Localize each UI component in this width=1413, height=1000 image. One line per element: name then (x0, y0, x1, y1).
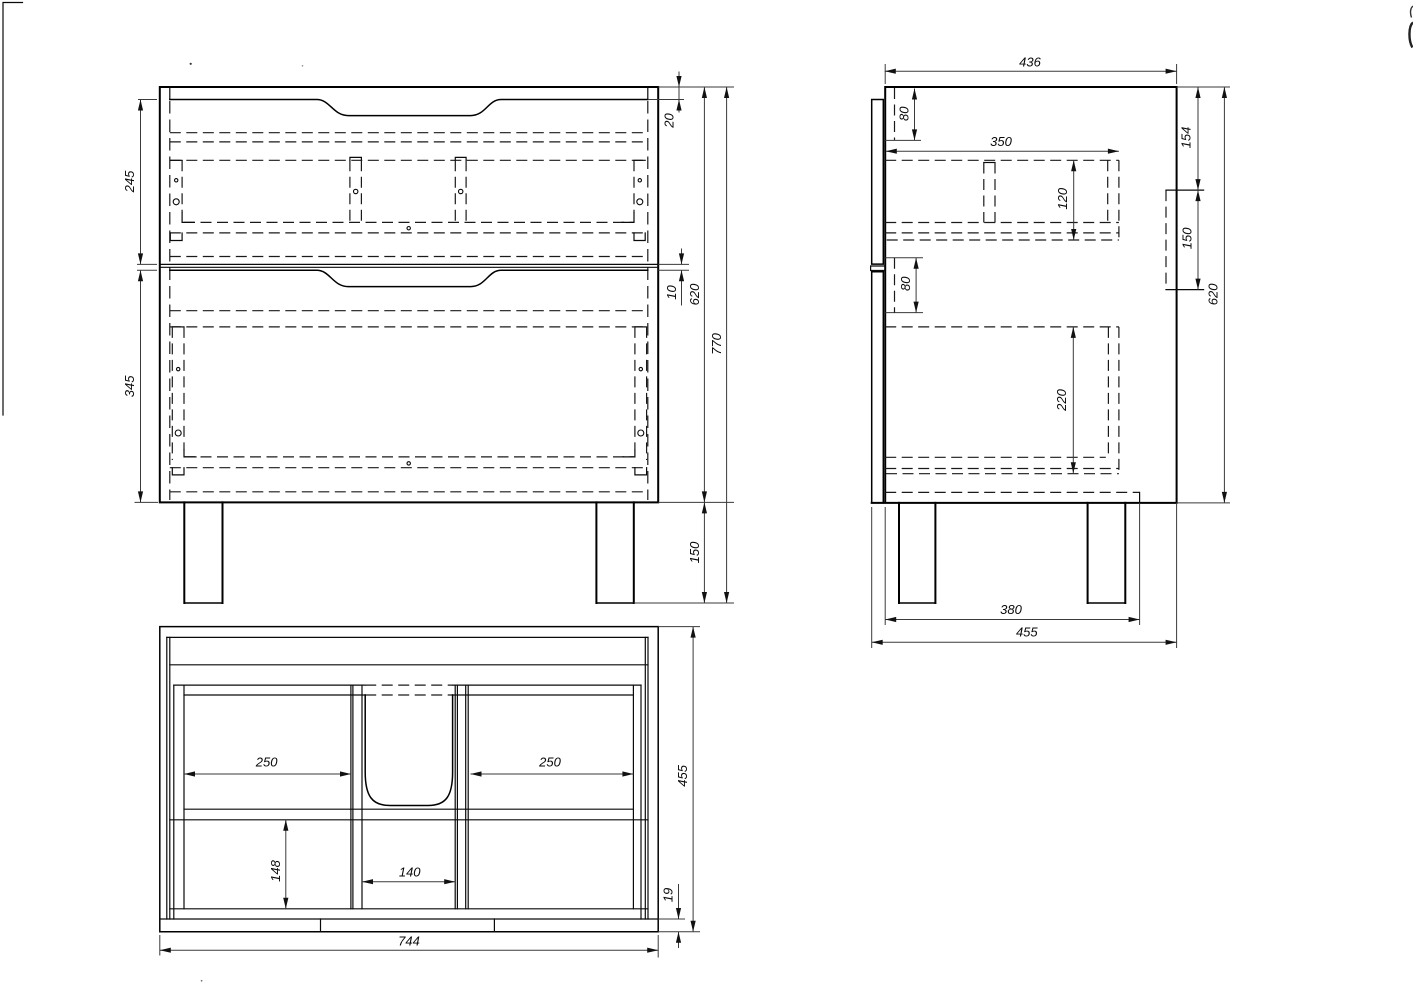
svg-text:455: 455 (1016, 624, 1038, 639)
svg-text:150: 150 (1179, 227, 1194, 249)
svg-text:80: 80 (896, 106, 911, 121)
svg-text:148: 148 (268, 859, 283, 881)
svg-text:150: 150 (687, 541, 702, 563)
svg-text:744: 744 (398, 933, 420, 948)
svg-text:250: 250 (255, 755, 278, 770)
svg-text:455: 455 (675, 764, 690, 786)
svg-text:250: 250 (538, 755, 561, 770)
svg-text:770: 770 (709, 332, 724, 354)
svg-text:620: 620 (687, 283, 702, 305)
svg-text:220: 220 (1054, 388, 1069, 411)
svg-text:20: 20 (662, 113, 677, 129)
svg-text:345: 345 (122, 375, 137, 397)
svg-text:350: 350 (990, 134, 1012, 149)
svg-text:80: 80 (898, 276, 913, 291)
svg-text:19: 19 (661, 888, 676, 902)
svg-text:140: 140 (399, 864, 421, 879)
svg-text:436: 436 (1019, 55, 1041, 70)
svg-text:380: 380 (1000, 602, 1022, 617)
svg-text:245: 245 (122, 170, 137, 193)
svg-text:120: 120 (1055, 187, 1070, 209)
svg-text:154: 154 (1179, 127, 1194, 149)
svg-text:10: 10 (664, 285, 679, 300)
svg-text:620: 620 (1206, 283, 1221, 305)
